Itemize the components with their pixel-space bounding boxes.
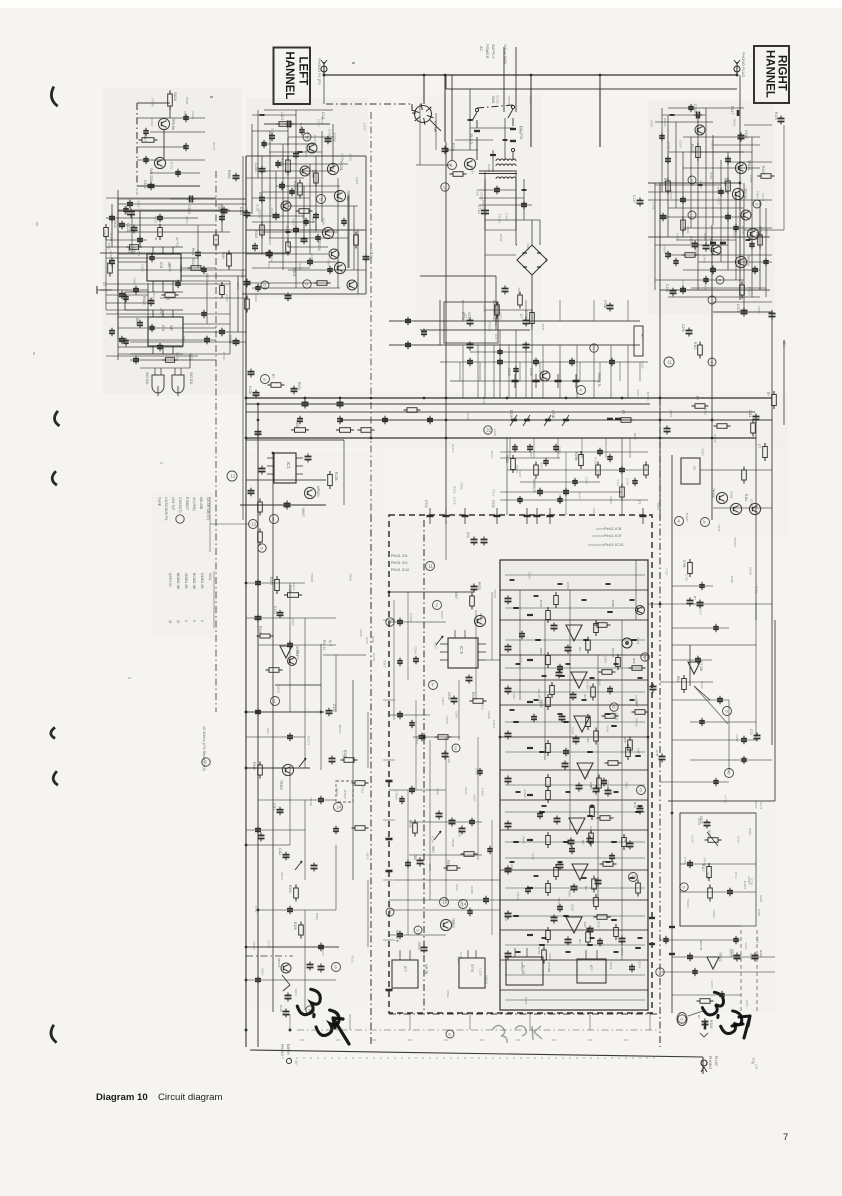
svg-text:R613: R613 bbox=[191, 258, 195, 266]
svg-text:TR104: TR104 bbox=[746, 255, 750, 266]
svg-text:SW5?: SW5? bbox=[301, 508, 305, 517]
svg-text:IC?: IC? bbox=[578, 647, 582, 652]
svg-text:R55: R55 bbox=[623, 737, 627, 743]
svg-text:TR201: TR201 bbox=[339, 160, 343, 171]
svg-text:C822: C822 bbox=[730, 949, 734, 957]
svg-text:IC?: IC? bbox=[581, 840, 585, 845]
svg-text:14: 14 bbox=[336, 805, 341, 810]
svg-text:D698: D698 bbox=[748, 567, 752, 575]
svg-text:EARTH: EARTH bbox=[286, 1044, 290, 1055]
svg-text:IC 8: IC 8 bbox=[459, 646, 464, 654]
svg-text:C916: C916 bbox=[529, 368, 533, 376]
svg-text:45?: 45? bbox=[294, 1060, 298, 1066]
svg-text:R615: R615 bbox=[142, 296, 146, 305]
svg-text:R647: R647 bbox=[490, 451, 494, 459]
svg-text:R101: R101 bbox=[690, 144, 694, 153]
svg-text:C602: C602 bbox=[217, 204, 221, 212]
svg-text:11: 11 bbox=[428, 564, 433, 569]
svg-text:Pin11 IC10: Pin11 IC10 bbox=[604, 542, 624, 547]
svg-text:R107: R107 bbox=[761, 166, 765, 175]
svg-text:TR15: TR15 bbox=[492, 489, 496, 497]
svg-text:PIN 11: PIN 11 bbox=[322, 640, 326, 650]
svg-text:S/O S31: S/O S31 bbox=[189, 372, 193, 385]
svg-text:R11L: R11L bbox=[744, 494, 748, 502]
svg-text:R204: R204 bbox=[292, 268, 296, 276]
svg-text:C823: C823 bbox=[699, 816, 703, 824]
svg-text:R913: R913 bbox=[471, 692, 475, 700]
svg-text:L201: L201 bbox=[280, 112, 284, 120]
svg-text:R203: R203 bbox=[293, 181, 297, 190]
svg-text:47: 47 bbox=[102, 282, 106, 286]
svg-text:TR102: TR102 bbox=[743, 188, 747, 199]
svg-text:PHONO P1 (P2: PHONO P1 (P2 bbox=[317, 58, 321, 85]
svg-text:SW?: SW? bbox=[454, 592, 458, 599]
svg-text:R205: R205 bbox=[254, 230, 258, 238]
svg-text:TR906: TR906 bbox=[711, 488, 715, 498]
svg-text:R023: R023 bbox=[297, 382, 301, 390]
svg-text:FR02: FR02 bbox=[539, 700, 543, 708]
svg-text:2: 2 bbox=[200, 620, 204, 622]
svg-text:Circuit diagram: Circuit diagram bbox=[158, 1092, 223, 1103]
svg-text:R?6: R?6 bbox=[633, 802, 637, 808]
svg-text:R?: R? bbox=[766, 392, 770, 396]
svg-text:1:KSC1845 F/L: 1:KSC1845 F/L bbox=[164, 497, 168, 521]
svg-text:C364: C364 bbox=[625, 478, 629, 486]
svg-text:AC: AC bbox=[479, 46, 483, 52]
svg-text:HB-45B: HB-45B bbox=[199, 497, 203, 510]
svg-text:(1% ?LF: (1% ?LF bbox=[171, 497, 175, 510]
svg-text:SM1: SM1 bbox=[491, 96, 495, 104]
svg-text:S/O S31: S/O S31 bbox=[145, 372, 149, 385]
svg-text:C126: C126 bbox=[248, 386, 252, 394]
svg-text:C7: C7 bbox=[757, 444, 761, 448]
svg-text:R?: R? bbox=[621, 410, 625, 414]
svg-text:W/H: W/H bbox=[221, 252, 225, 259]
svg-text:(10): (10) bbox=[466, 532, 470, 538]
svg-text:10: 10 bbox=[442, 900, 447, 905]
svg-text:C4: C4 bbox=[544, 258, 548, 262]
svg-text:(3: (3 bbox=[176, 620, 180, 623]
svg-text:12: 12 bbox=[150, 297, 154, 301]
svg-text:C290: C290 bbox=[700, 681, 704, 689]
svg-text:R?05: R?05 bbox=[408, 820, 412, 828]
svg-text:C9?: C9? bbox=[589, 782, 593, 788]
svg-text:IC?: IC? bbox=[586, 738, 590, 743]
svg-text:C?: C? bbox=[463, 314, 467, 318]
svg-text:7: 7 bbox=[783, 1132, 788, 1143]
svg-text:R324: R324 bbox=[709, 1020, 713, 1028]
svg-text:PIN11 IC9: PIN11 IC9 bbox=[391, 561, 407, 565]
svg-text:HANNEL: HANNEL bbox=[283, 52, 295, 100]
svg-text:S/R16 B: S/R16 B bbox=[395, 930, 399, 942]
svg-text:IC6: IC6 bbox=[161, 325, 166, 332]
svg-text:TR655(TL: TR655(TL bbox=[532, 478, 536, 493]
svg-text:PLS 3: PLS 3 bbox=[469, 134, 473, 144]
svg-text:D938: D938 bbox=[596, 470, 600, 478]
svg-text:POWER: POWER bbox=[485, 44, 489, 59]
svg-text:D1861 3B: D1861 3B bbox=[200, 573, 204, 589]
svg-text:R59: R59 bbox=[632, 658, 636, 664]
svg-text:9: 9 bbox=[176, 237, 178, 241]
svg-text:IC671: IC671 bbox=[699, 607, 703, 616]
svg-text:R?2B: R?2B bbox=[343, 750, 347, 758]
svg-text:R124: R124 bbox=[593, 457, 597, 465]
svg-text:C?11?: C?11? bbox=[343, 790, 347, 799]
svg-text:RIGHT: RIGHT bbox=[776, 55, 788, 91]
svg-text:1?8: 1?8 bbox=[754, 1064, 758, 1070]
svg-text:C121: C121 bbox=[279, 1005, 283, 1013]
svg-text:R334: R334 bbox=[288, 885, 292, 893]
svg-text:SUPPLY: SUPPLY bbox=[491, 44, 495, 59]
svg-text:IC?: IC? bbox=[584, 886, 588, 891]
svg-text:C117: C117 bbox=[632, 195, 636, 203]
svg-text:IC6: IC6 bbox=[159, 262, 164, 269]
svg-text:R920: R920 bbox=[477, 582, 481, 590]
svg-text:4: 4 bbox=[184, 620, 188, 622]
svg-text:TJ: TJ bbox=[692, 466, 696, 470]
svg-text:C102: C102 bbox=[744, 130, 748, 139]
svg-text:PHONO: PHONO bbox=[708, 1056, 712, 1069]
svg-text:R?: R? bbox=[693, 596, 697, 600]
svg-text:R607: R607 bbox=[539, 462, 543, 470]
svg-text:FS1 FS2: FS1 FS2 bbox=[519, 126, 523, 139]
svg-text:R64: R64 bbox=[676, 676, 680, 682]
svg-text:IC?: IC? bbox=[403, 966, 407, 972]
svg-text:IC? (2B: IC? (2B bbox=[699, 660, 703, 671]
svg-text:L464: L464 bbox=[132, 247, 136, 254]
svg-text:13: 13 bbox=[166, 297, 170, 301]
svg-text:12: 12 bbox=[230, 474, 235, 479]
svg-text:C?: C? bbox=[519, 314, 523, 318]
svg-text:C108: C108 bbox=[681, 324, 685, 332]
svg-text:R116: R116 bbox=[755, 586, 759, 593]
svg-text:TYPE: TYPE bbox=[157, 497, 161, 507]
svg-text:C203: C203 bbox=[254, 163, 258, 172]
svg-text:PIN11 IC8: PIN11 IC8 bbox=[391, 554, 407, 558]
svg-text:C202: C202 bbox=[332, 133, 336, 142]
svg-text:MC1?B: MC1?B bbox=[699, 940, 703, 950]
svg-text:11: 11 bbox=[667, 360, 672, 365]
svg-text:M?A21: M?A21 bbox=[295, 646, 299, 656]
svg-text:C915: C915 bbox=[507, 368, 511, 376]
svg-text:C?2B: C?2B bbox=[603, 300, 607, 308]
svg-text:R334: R334 bbox=[446, 860, 450, 868]
svg-text:S01(: S01( bbox=[208, 573, 212, 581]
svg-text:C255: C255 bbox=[452, 497, 456, 505]
svg-text:TR85: TR85 bbox=[730, 576, 734, 584]
svg-text:R956: R956 bbox=[611, 600, 615, 608]
svg-text:C959: C959 bbox=[735, 734, 739, 742]
svg-text:R?: R? bbox=[695, 396, 699, 400]
svg-text:C121: C121 bbox=[273, 606, 277, 614]
svg-text:C?: C? bbox=[637, 500, 641, 504]
svg-text:ETM027: ETM027 bbox=[185, 497, 189, 510]
svg-text:C720: C720 bbox=[524, 310, 528, 319]
svg-text:C111: C111 bbox=[748, 410, 752, 417]
svg-text:TR101: TR101 bbox=[747, 160, 751, 171]
svg-text:C986: C986 bbox=[460, 482, 464, 490]
svg-text:C111: C111 bbox=[272, 803, 276, 810]
svg-text:S/R: S/R bbox=[167, 262, 171, 268]
svg-text:#D861 3B: #D861 3B bbox=[184, 573, 188, 589]
svg-text:C112: C112 bbox=[278, 848, 282, 856]
svg-text:R110: R110 bbox=[693, 342, 697, 350]
svg-text:42:(?H8): 42:(?H8) bbox=[192, 497, 196, 511]
svg-text:R918: R918 bbox=[539, 648, 543, 656]
svg-text:TR103: TR103 bbox=[758, 226, 762, 237]
svg-text:C920: C920 bbox=[417, 942, 421, 950]
svg-text:S431: S431 bbox=[616, 479, 620, 486]
svg-text:45V: 45V bbox=[782, 340, 786, 347]
svg-text:IC?: IC? bbox=[583, 694, 587, 699]
svg-text:TR202: TR202 bbox=[346, 190, 350, 201]
svg-text:14: 14 bbox=[461, 902, 466, 907]
svg-text:C123: C123 bbox=[126, 223, 130, 232]
svg-text:T: T bbox=[431, 683, 434, 688]
svg-text:C7B: C7B bbox=[655, 750, 659, 756]
svg-text:IC?: IC? bbox=[578, 939, 582, 944]
svg-text:12: 12 bbox=[251, 522, 256, 527]
svg-text:TR313: TR313 bbox=[279, 780, 283, 790]
svg-text:C107: C107 bbox=[736, 304, 740, 312]
svg-text:Pin11 IC9: Pin11 IC9 bbox=[604, 533, 622, 538]
svg-text:TR303: TR303 bbox=[733, 538, 737, 548]
svg-text:TR655(TL: TR655(TL bbox=[597, 372, 601, 387]
svg-text:T?6: T?6 bbox=[623, 837, 627, 843]
svg-text:M?16A: M?16A bbox=[611, 648, 615, 658]
svg-text:C?15: C?15 bbox=[424, 500, 428, 508]
svg-text:MPA21: MPA21 bbox=[316, 486, 320, 497]
svg-text:C613: C613 bbox=[187, 205, 191, 214]
svg-text:R326: R326 bbox=[258, 626, 262, 634]
svg-text:C105: C105 bbox=[689, 236, 693, 244]
svg-text:BD861 3B: BD861 3B bbox=[176, 573, 180, 590]
svg-text:PIN11 IC10: PIN11 IC10 bbox=[391, 568, 409, 572]
svg-text:D?: D? bbox=[521, 252, 525, 256]
svg-text:LEFT: LEFT bbox=[297, 57, 309, 86]
svg-text:8: 8 bbox=[155, 237, 157, 241]
svg-text:SW?: SW? bbox=[431, 846, 435, 853]
svg-text:C103: C103 bbox=[693, 104, 697, 113]
svg-text:C?1B: C?1B bbox=[551, 410, 555, 418]
svg-text:C9?: C9? bbox=[583, 922, 587, 928]
svg-text:R117: R117 bbox=[730, 106, 734, 114]
svg-text:TR322: TR322 bbox=[718, 952, 722, 962]
svg-text:C216: C216 bbox=[369, 250, 373, 258]
svg-text:R323: R323 bbox=[759, 950, 763, 958]
svg-text:C306: C306 bbox=[641, 361, 645, 369]
svg-text:2:0X28(T): 2:0X28(T) bbox=[178, 497, 182, 513]
svg-text:HANNEL: HANNEL bbox=[764, 50, 776, 98]
svg-text:S?7400: S?7400 bbox=[547, 962, 551, 973]
svg-text:SA SR GB(S?): SA SR GB(S?) bbox=[206, 497, 210, 520]
svg-text:R?: R? bbox=[271, 374, 275, 378]
svg-text:PHONO PLUG: PHONO PLUG bbox=[741, 52, 745, 77]
svg-text:R100: R100 bbox=[774, 112, 778, 120]
svg-text:R313: R313 bbox=[252, 762, 256, 770]
svg-text:PHONO: PHONO bbox=[280, 1044, 284, 1056]
svg-text:22: 22 bbox=[486, 428, 491, 433]
svg-text:R616: R616 bbox=[173, 92, 177, 101]
svg-text:MPS?1: MPS?1 bbox=[277, 958, 281, 968]
svg-text:R?: R? bbox=[697, 1015, 701, 1019]
svg-text:911B: 911B bbox=[505, 455, 509, 463]
svg-text:C111: C111 bbox=[321, 112, 325, 120]
svg-text:R?18: R?18 bbox=[539, 600, 543, 608]
svg-text:S/O S31: S/O S31 bbox=[149, 168, 153, 182]
svg-text:PLUG: PLUG bbox=[714, 1056, 718, 1066]
svg-text:IC 7: IC 7 bbox=[328, 640, 332, 646]
svg-text:R201: R201 bbox=[280, 158, 284, 167]
svg-text:C612: C612 bbox=[143, 180, 147, 189]
svg-text:R9?: R9? bbox=[529, 452, 533, 458]
svg-text:R629: R629 bbox=[295, 420, 299, 428]
svg-text:R29B: R29B bbox=[574, 452, 578, 461]
svg-text:S?74: S?74 bbox=[609, 962, 613, 969]
svg-text:C105: C105 bbox=[332, 704, 336, 712]
svg-text:R12B: R12B bbox=[334, 472, 338, 481]
svg-text:R604: R604 bbox=[227, 170, 231, 179]
svg-text:R617: R617 bbox=[143, 133, 147, 142]
svg-text:C105: C105 bbox=[665, 284, 669, 292]
svg-text:R726: R726 bbox=[451, 143, 455, 151]
svg-text:10: 10 bbox=[631, 875, 636, 880]
svg-text:R32B: R32B bbox=[288, 585, 292, 594]
svg-text:IC1: IC1 bbox=[286, 462, 291, 469]
svg-text:S?06: S?06 bbox=[682, 560, 686, 568]
svg-text:9: 9 bbox=[192, 620, 196, 622]
svg-text:R218: R218 bbox=[509, 410, 513, 418]
svg-text:S/R 5B: S/R 5B bbox=[424, 964, 428, 974]
svg-text:Pin11 IC8: Pin11 IC8 bbox=[604, 526, 622, 531]
svg-text:FR(2: FR(2 bbox=[635, 700, 639, 707]
svg-text:C610: C610 bbox=[123, 206, 127, 215]
svg-text:11: 11 bbox=[168, 620, 172, 624]
svg-text:S/R: S/R bbox=[169, 325, 173, 331]
svg-text:BC861 3B: BC861 3B bbox=[192, 573, 196, 590]
svg-text:R32?: R32? bbox=[269, 577, 273, 585]
svg-text:R323: R323 bbox=[453, 486, 457, 494]
svg-text:TR5 6A: TR5 6A bbox=[171, 118, 175, 131]
svg-text:IC?: IC? bbox=[589, 965, 593, 971]
svg-text:C752: C752 bbox=[684, 574, 688, 582]
svg-text:C205: C205 bbox=[239, 207, 243, 215]
svg-text:C710: C710 bbox=[477, 205, 481, 214]
svg-text:R?: R? bbox=[640, 334, 644, 338]
svg-text:R128: R128 bbox=[293, 922, 297, 930]
svg-text:R11?: R11? bbox=[701, 864, 705, 872]
svg-text:C913: C913 bbox=[447, 692, 451, 700]
svg-text:C?1: C?1 bbox=[749, 729, 753, 735]
svg-text:S?74: S?74 bbox=[470, 964, 474, 972]
svg-text:Diagram 10: Diagram 10 bbox=[96, 1092, 148, 1103]
svg-text:R447: R447 bbox=[577, 492, 581, 500]
svg-text:S/R: S/R bbox=[127, 247, 131, 253]
svg-text:C934: C934 bbox=[584, 477, 588, 485]
svg-text:C605: C605 bbox=[228, 335, 232, 344]
svg-text:C?4?: C?4? bbox=[537, 947, 541, 955]
svg-text:TR307: TR307 bbox=[558, 494, 562, 503]
svg-text:IC 10: IC 10 bbox=[521, 965, 525, 974]
svg-text:TR203: TR203 bbox=[317, 240, 321, 251]
svg-text:C915: C915 bbox=[491, 500, 495, 508]
svg-text:S797: S797 bbox=[665, 568, 669, 576]
svg-text:TRB05: TRB05 bbox=[451, 918, 455, 928]
svg-text:ASSY IN: ASSY IN bbox=[168, 573, 172, 587]
